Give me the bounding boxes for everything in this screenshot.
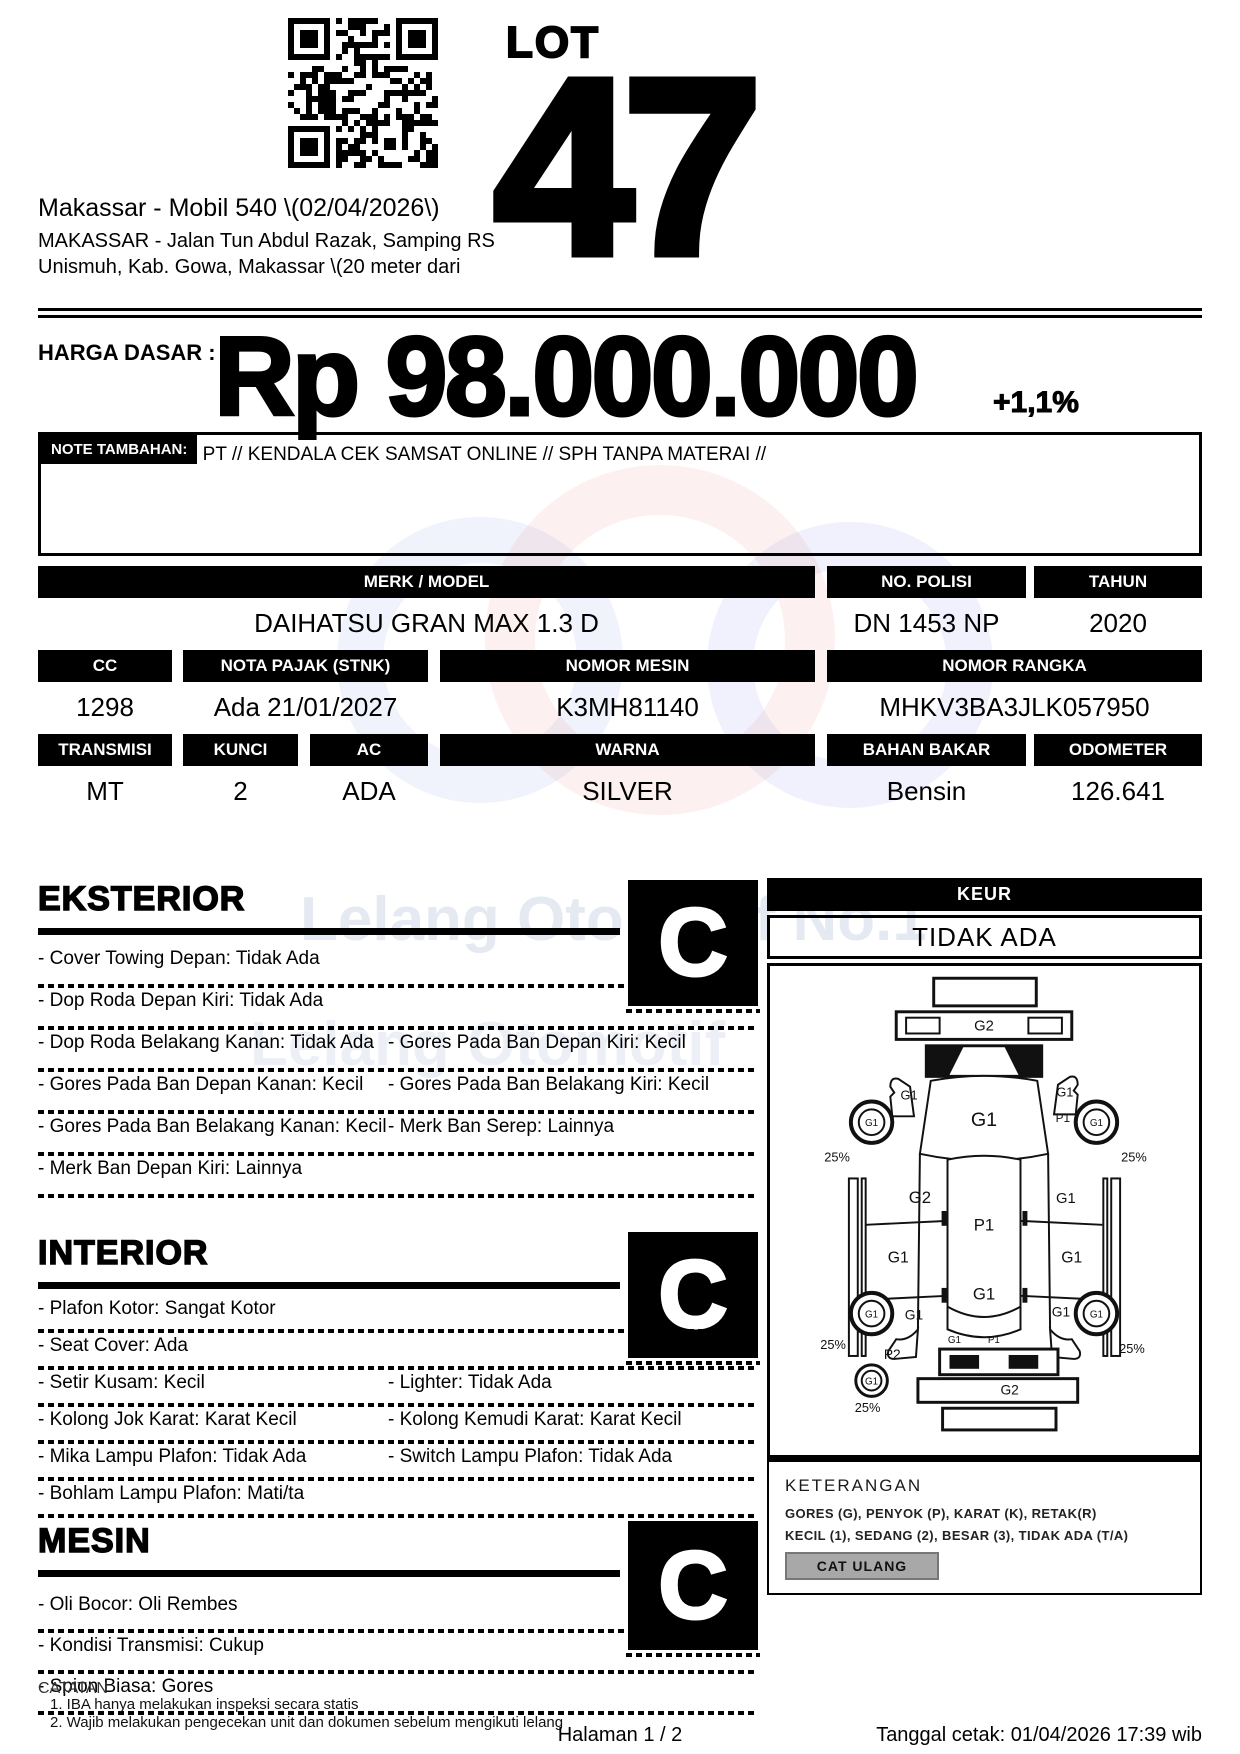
header-nomor-rangka: NOMOR RANGKA (827, 650, 1202, 682)
inspection-item-row: - Kondisi Transmisi: Cukup (38, 1635, 758, 1676)
inspection-item-row: - Kolong Jok Karat: Karat Kecil- Kolong … (38, 1409, 758, 1446)
header-ac: AC (310, 734, 428, 766)
note-box: AN PT // KENDALA CEK SAMSAT ONLINE // SP… (38, 432, 1202, 556)
car-top-view: G2G1G1G1G1P125%25%G1G2G1P1G1G1G1G1G1G1G1… (770, 966, 1199, 1455)
damage-code-label: G2 (1000, 1382, 1018, 1397)
section-rule-interior (38, 1282, 620, 1289)
keur-header: KEUR (767, 878, 1202, 911)
damage-code-label: G2 (909, 1188, 931, 1207)
venue-address-line2: Unismuh, Kab. Gowa, Makassar \(20 meter … (38, 254, 460, 280)
cat-ulang-chip: CAT ULANG (785, 1552, 939, 1580)
damage-code-label: G1 (905, 1307, 923, 1322)
dotted-separator (38, 984, 758, 988)
inspection-item-left: - Gores Pada Ban Belakang Kanan: Kecil (38, 1116, 390, 1138)
value-warna: SILVER (440, 768, 815, 814)
section-title-eksterior: EKSTERIOR (38, 880, 245, 919)
damage-code-label: G1 (973, 1285, 995, 1304)
damage-code-label: P1 (974, 1216, 995, 1235)
value-no-polisi: DN 1453 NP (827, 600, 1026, 646)
header-tahun: TAHUN (1034, 566, 1202, 598)
damage-code-label: G1 (1090, 1310, 1103, 1321)
dotted-separator (38, 1514, 758, 1518)
dotted-separator (38, 1403, 758, 1407)
header-nota-pajak: NOTA PAJAK (STNK) (183, 650, 428, 682)
dotted-separator (38, 1477, 758, 1481)
damage-code-label: 25% (824, 1150, 850, 1165)
damage-code-label: G1 (865, 1118, 878, 1129)
inspection-item-right: - Merk Ban Serep: Lainnya (388, 1116, 758, 1138)
header-nomor-mesin: NOMOR MESIN (440, 650, 815, 682)
damage-code-label: G1 (1056, 1191, 1076, 1207)
dotted-separator (38, 1629, 758, 1633)
inspection-item-row: - Bohlam Lampu Plafon: Mati/ta (38, 1483, 758, 1520)
inspection-item-row: - Merk Ban Depan Kiri: Lainnya (38, 1158, 758, 1200)
damage-code-label: G1 (971, 1109, 997, 1131)
inspection-item-left: - Gores Pada Ban Depan Kanan: Kecil (38, 1074, 390, 1096)
value-merk-model: DAIHATSU GRAN MAX 1.3 D (38, 600, 815, 646)
inspection-item-left: - Kondisi Transmisi: Cukup (38, 1635, 390, 1657)
value-nomor-rangka: MHKV3BA3JLK057950 (827, 684, 1202, 730)
venue-address-line1: MAKASSAR - Jalan Tun Abdul Razak, Sampin… (38, 228, 495, 254)
value-bahan-bakar: Bensin (827, 768, 1026, 814)
note-label: NOTE TAMBAHAN: (41, 435, 197, 464)
inspection-item-right: - Gores Pada Ban Depan Kiri: Kecil (388, 1032, 758, 1054)
interior-items: - Plafon Kotor: Sangat Kotor- Seat Cover… (38, 1298, 758, 1520)
damage-code-label: G1 (865, 1310, 878, 1321)
price-increment: +1,1% (993, 386, 1079, 420)
section-title-interior: INTERIOR (38, 1234, 208, 1273)
dotted-separator (38, 1068, 758, 1072)
damage-code-label: G1 (1061, 1249, 1082, 1266)
inspection-item-right: - Gores Pada Ban Belakang Kiri: Kecil (388, 1074, 758, 1096)
eksterior-items: - Cover Towing Depan: Tidak Ada- Dop Rod… (38, 948, 758, 1200)
lot-number: 47 (494, 42, 752, 292)
inspection-item-left: - Bohlam Lampu Plafon: Mati/ta (38, 1483, 390, 1505)
inspection-item-row: - Plafon Kotor: Sangat Kotor (38, 1298, 758, 1335)
value-tahun: 2020 (1034, 600, 1202, 646)
value-odometer: 126.641 (1034, 768, 1202, 814)
header-merk-model: MERK / MODEL (38, 566, 815, 598)
inspection-item-left: - Merk Ban Depan Kiri: Lainnya (38, 1158, 390, 1180)
dotted-separator (38, 1440, 758, 1444)
keterangan-line2: KECIL (1), SEDANG (2), BESAR (3), TIDAK … (785, 1528, 1128, 1543)
damage-code-label: G1 (1052, 1305, 1070, 1320)
dotted-separator (38, 1366, 758, 1370)
damage-code-label: G1 (1056, 1085, 1073, 1100)
inspection-item-right: - Kolong Kemudi Karat: Karat Kecil (388, 1409, 758, 1431)
inspection-item-row: - Gores Pada Ban Belakang Kanan: Kecil- … (38, 1116, 758, 1158)
value-nota-pajak: Ada 21/01/2027 (183, 684, 428, 730)
header-bahan-bakar: BAHAN BAKAR (827, 734, 1026, 766)
dotted-separator (38, 1670, 758, 1674)
damage-code-label: G1 (1090, 1118, 1103, 1129)
value-kunci: 2 (183, 768, 298, 814)
venue-title: Makassar - Mobil 540 \(02/04/2026\) (38, 194, 440, 223)
keterangan-line1: GORES (G), PENYOK (P), KARAT (K), RETAK(… (785, 1506, 1097, 1521)
value-ac: ADA (310, 768, 428, 814)
print-timestamp: Tanggal cetak: 01/04/2026 17:39 wib (700, 1724, 1202, 1747)
note-text: AN PT // KENDALA CEK SAMSAT ONLINE // SP… (171, 444, 766, 466)
inspection-item-row: - Mika Lampu Plafon: Tidak Ada- Switch L… (38, 1446, 758, 1483)
damage-code-label: G1 (948, 1335, 961, 1346)
value-transmisi: MT (38, 768, 172, 814)
section-title-mesin: MESIN (38, 1522, 151, 1561)
dotted-separator (38, 1329, 758, 1333)
header-cc: CC (38, 650, 172, 682)
dotted-separator (38, 1194, 758, 1198)
qr-code (288, 18, 438, 168)
inspection-item-row: - Seat Cover: Ada (38, 1335, 758, 1372)
inspection-item-right: - Lighter: Tidak Ada (388, 1372, 758, 1394)
header-warna: WARNA (440, 734, 815, 766)
dotted-separator (38, 1152, 758, 1156)
inspection-item-row: - Setir Kusam: Kecil- Lighter: Tidak Ada (38, 1372, 758, 1409)
damage-code-label: G2 (974, 1019, 994, 1035)
damage-code-label: G1 (888, 1249, 909, 1266)
dotted-separator (38, 1026, 758, 1030)
inspection-item-right: - Switch Lampu Plafon: Tidak Ada (388, 1446, 758, 1468)
auction-lot-sheet: Lelang Otomotif No.1 Lelang Otomotif LOT… (0, 0, 1240, 1754)
inspection-item-row: - Oli Bocor: Oli Rembes (38, 1594, 758, 1635)
damage-code-label: 25% (855, 1400, 881, 1415)
inspection-item-left: - Dop Roda Belakang Kanan: Tidak Ada (38, 1032, 390, 1054)
keterangan-title: KETERANGAN (785, 1476, 922, 1496)
inspection-item-left: - Oli Bocor: Oli Rembes (38, 1594, 390, 1616)
value-nomor-mesin: K3MH81140 (440, 684, 815, 730)
inspection-item-left: - Mika Lampu Plafon: Tidak Ada (38, 1446, 390, 1468)
inspection-item-left: - Dop Roda Depan Kiri: Tidak Ada (38, 990, 390, 1012)
header-transmisi: TRANSMISI (38, 734, 172, 766)
damage-code-label: P1 (1056, 1111, 1070, 1125)
damage-code-label: P1 (988, 1335, 1000, 1346)
inspection-item-left: - Cover Towing Depan: Tidak Ada (38, 948, 390, 970)
damage-code-label: G1 (901, 1088, 918, 1103)
value-cc: 1298 (38, 684, 172, 730)
inspection-item-left: - Setir Kusam: Kecil (38, 1372, 390, 1394)
section-rule-eksterior (38, 928, 620, 935)
section-rule-mesin (38, 1570, 620, 1577)
inspection-item-row: - Cover Towing Depan: Tidak Ada (38, 948, 758, 990)
damage-code-label: 25% (1119, 1341, 1145, 1356)
keur-value: TIDAK ADA (767, 915, 1202, 959)
inspection-item-row: - Dop Roda Belakang Kanan: Tidak Ada- Go… (38, 1032, 758, 1074)
damage-code-label: 25% (1121, 1150, 1147, 1165)
inspection-item-left: - Plafon Kotor: Sangat Kotor (38, 1298, 390, 1320)
header-odometer: ODOMETER (1034, 734, 1202, 766)
damage-code-label: P2 (884, 1347, 901, 1362)
header-no-polisi: NO. POLISI (827, 566, 1026, 598)
header-kunci: KUNCI (183, 734, 298, 766)
damage-code-label: G1 (865, 1377, 878, 1388)
damage-code-label: 25% (820, 1337, 846, 1352)
inspection-item-left: - Seat Cover: Ada (38, 1335, 390, 1357)
inspection-item-left: - Kolong Jok Karat: Karat Kecil (38, 1409, 390, 1431)
inspection-item-row: - Dop Roda Depan Kiri: Tidak Ada (38, 990, 758, 1032)
base-price-amount: Rp 98.000.000 (160, 312, 970, 441)
catatan-line1: 1. IBA hanya melakukan inspeksi secara s… (50, 1696, 359, 1713)
dotted-separator (38, 1110, 758, 1114)
keterangan-box: KETERANGAN GORES (G), PENYOK (P), KARAT … (767, 1458, 1202, 1595)
inspection-item-row: - Gores Pada Ban Depan Kanan: Kecil- Gor… (38, 1074, 758, 1116)
damage-diagram: G2G1G1G1G1P125%25%G1G2G1P1G1G1G1G1G1G1G1… (767, 963, 1202, 1458)
